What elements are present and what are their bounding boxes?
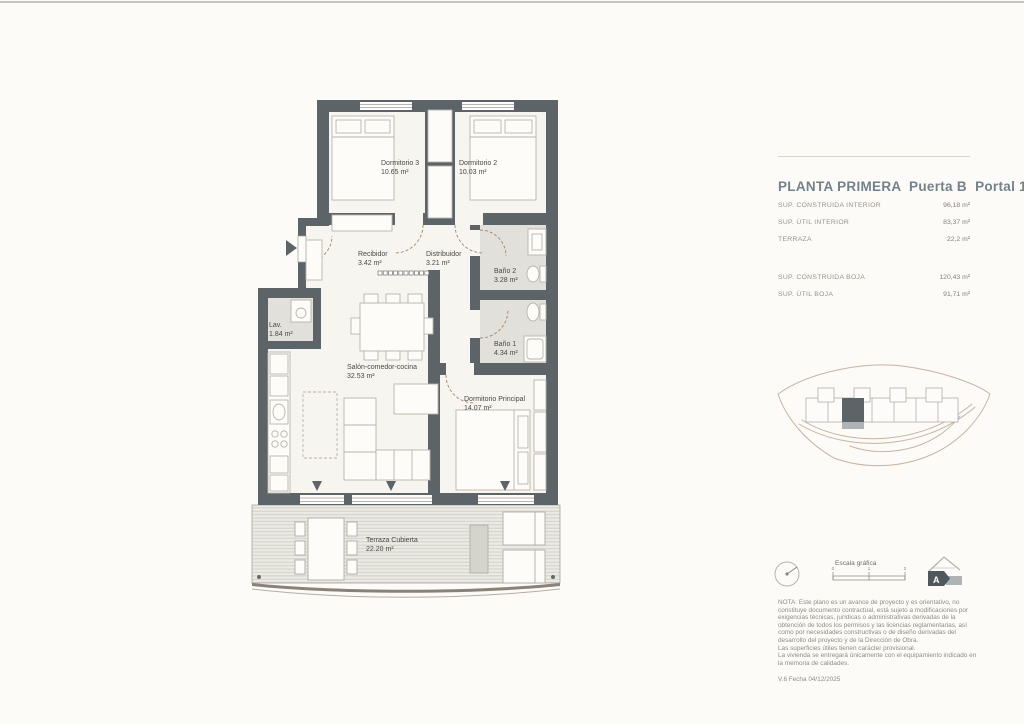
bed-dormitorio3	[332, 116, 394, 200]
floorplan-sheet: Dormitorio 3 10.65 m² Dormitorio 2 10.03…	[0, 0, 1024, 724]
area-distribuidor: 3.21 m²	[426, 260, 450, 267]
terrace-edge-band	[252, 583, 560, 593]
terrace-dining-set	[295, 518, 357, 580]
label-dormitorio2: Dormitorio 2	[459, 160, 497, 167]
area-terraza: 22.20 m²	[366, 546, 394, 553]
table-row: SUP. ÚTIL BOJA 91,71 m²	[778, 291, 970, 308]
area-bano2: 3.28 m²	[494, 277, 518, 284]
label-distribuidor: Distribuidor	[426, 251, 462, 258]
scale-bar: 0 1 2	[832, 566, 907, 580]
label-dormitorio3: Dormitorio 3	[381, 160, 419, 167]
label-lavadero: Lav.	[269, 322, 282, 329]
entry-arrow-icon	[286, 240, 297, 256]
site-plan-map	[778, 365, 990, 466]
note-paragraph: Las superficies útiles tienen carácter p…	[778, 645, 977, 653]
area-bano1: 4.34 m²	[494, 350, 518, 357]
surface-label: SUP. ÚTIL BOJA	[778, 291, 833, 298]
note-paragraph: La vivienda se entregará únicamente con …	[778, 652, 977, 667]
label-bano2: Baño 2	[494, 268, 516, 275]
page-title: PLANTA PRIMERA Puerta B Portal 1	[778, 179, 1018, 194]
label-terraza: Terraza Cubierta	[366, 537, 418, 544]
energy-letter: A	[933, 575, 940, 585]
energy-rating-icon: A	[928, 557, 962, 586]
bed-dormitorio2	[470, 116, 536, 200]
surface-table-boja: SUP. CONSTRUIDA BOJA 120,43 m² SUP. ÚTIL…	[778, 274, 970, 308]
table-row: SUP. CONSTRUIDA INTERIOR 96,18 m²	[778, 202, 970, 219]
version-date: V.6 Fecha 04/12/2025	[778, 676, 840, 683]
label-bano1: Baño 1	[494, 341, 516, 348]
surface-value: 120,43 m²	[939, 274, 970, 281]
disclaimer-note: NOTA: Este plano es un avance de proyect…	[778, 599, 977, 667]
entry-door	[298, 236, 306, 262]
surface-label: TERRAZA	[778, 236, 812, 243]
surface-table-interior: SUP. CONSTRUIDA INTERIOR 96,18 m² SUP. Ú…	[778, 202, 970, 253]
area-recibidor: 3.42 m²	[358, 260, 382, 267]
table-row: SUP. CONSTRUIDA BOJA 120,43 m²	[778, 274, 970, 291]
surface-label: SUP. ÚTIL INTERIOR	[778, 219, 849, 226]
label-salon: Salón-comedor-cocina	[347, 364, 417, 371]
area-dormitorio-principal: 14.07 m²	[464, 405, 492, 412]
terrace	[252, 505, 560, 597]
table-row: TERRAZA 22,2 m²	[778, 236, 970, 253]
label-dormitorio-principal: Dormitorio Principal	[464, 396, 526, 403]
kitchen-counter	[268, 352, 290, 493]
label-recibidor: Recibidor	[358, 251, 388, 258]
note-paragraph: NOTA: Este plano es un avance de proyect…	[778, 599, 977, 645]
surface-value: 83,37 m²	[943, 219, 970, 226]
area-salon: 32.53 m²	[347, 373, 375, 380]
surface-label: SUP. CONSTRUIDA BOJA	[778, 274, 865, 281]
dining-table	[351, 294, 433, 360]
site-plan-highlighted-unit	[842, 398, 864, 422]
surface-value: 22,2 m²	[947, 236, 970, 243]
scale-tick-2: 2	[904, 566, 907, 572]
surface-value: 91,71 m²	[943, 291, 970, 298]
scale-bar-label: Escala gráfica	[835, 560, 876, 567]
area-dormitorio2: 10.03 m²	[459, 169, 487, 176]
surface-value: 96,18 m²	[943, 202, 970, 209]
table-row: SUP. ÚTIL INTERIOR 83,37 m²	[778, 219, 970, 236]
compass-icon	[775, 562, 799, 586]
info-separator	[778, 156, 970, 157]
washing-machine	[291, 300, 311, 322]
surface-label: SUP. CONSTRUIDA INTERIOR	[778, 202, 881, 209]
area-dormitorio3: 10.65 m²	[381, 169, 409, 176]
area-lavadero: 1.84 m²	[269, 331, 293, 338]
